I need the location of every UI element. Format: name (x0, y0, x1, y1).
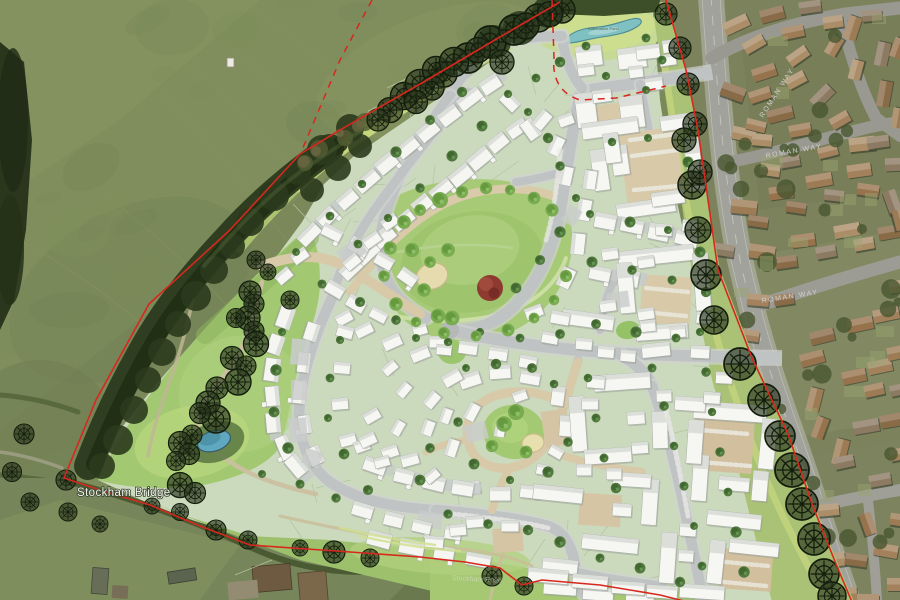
svg-text:Attenuation Pond: Attenuation Pond (588, 26, 619, 31)
svg-text:Stockham Bridge: Stockham Bridge (77, 487, 171, 499)
